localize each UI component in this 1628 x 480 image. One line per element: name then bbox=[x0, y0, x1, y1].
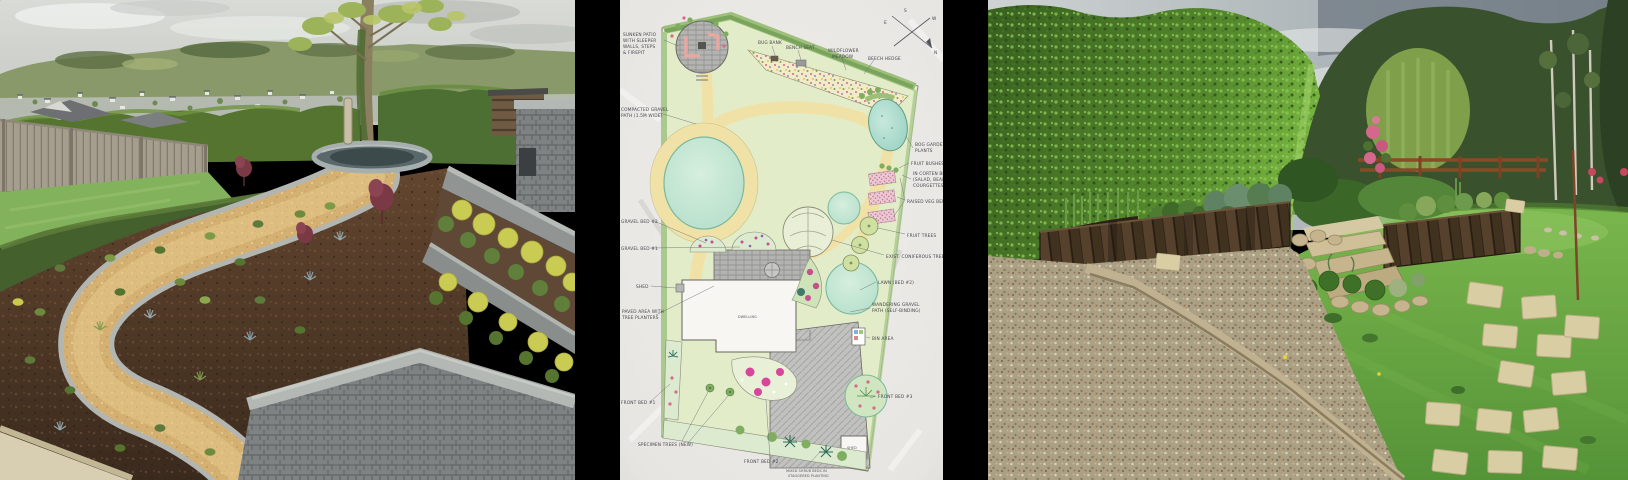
label-side-lawn: LAWN (BED #2) bbox=[878, 280, 914, 286]
label-fruit-bushes: FRUIT BUSHES bbox=[911, 161, 943, 167]
compass-n: N bbox=[934, 50, 937, 56]
label-bench-seat: BENCH SEAT bbox=[786, 45, 815, 51]
dwelling-label: DWELLING bbox=[738, 315, 757, 319]
label-bug-bank: BUG BANK bbox=[758, 40, 782, 46]
raised-veg-garden-scene bbox=[988, 0, 1628, 480]
herb-shrub bbox=[1411, 273, 1425, 287]
label-note: MIXED SHRUB BEDS IN bbox=[786, 469, 827, 473]
label-fruit-trees: FRUIT TREES bbox=[907, 233, 936, 239]
compass-s: S bbox=[904, 8, 907, 14]
willow-tree bbox=[1366, 48, 1470, 172]
svg-text:TREE PLANTERS: TREE PLANTERS bbox=[621, 315, 659, 321]
svg-text:COURGETTES): COURGETTES) bbox=[913, 183, 943, 189]
label-wildflower: WILDFLOWER bbox=[828, 48, 859, 54]
svg-text:& FIREPIT: & FIREPIT bbox=[623, 50, 645, 56]
terraced-garden-scene bbox=[0, 0, 575, 480]
label-front-bed-1: FRONT BED #1 bbox=[621, 400, 656, 406]
label-bin-area: BIN AREA bbox=[872, 336, 894, 342]
compass-w: W bbox=[932, 16, 937, 22]
stone-sculpture bbox=[344, 98, 352, 144]
garden-design-plan[interactable]: DWELLING SHED S N E W SUNKEN bbox=[620, 0, 943, 480]
svg-text:WITH SLEEPER: WITH SLEEPER bbox=[623, 38, 656, 44]
label-gravel-bed-1: GRAVEL BED #1 bbox=[621, 246, 658, 252]
label-gravel-bed-2: GRAVEL BED #2 bbox=[621, 219, 658, 225]
label-new-trees: SPECIMEN TREES (NEW) bbox=[638, 442, 693, 448]
label-shed-left: SHED bbox=[636, 284, 649, 290]
label-bog-garden: BOG GARDEN bbox=[915, 142, 943, 148]
svg-text:WALLS, STEPS: WALLS, STEPS bbox=[623, 44, 656, 50]
label-conifer: EXIST. CONIFEROUS TREE bbox=[886, 254, 943, 260]
label-front-bed-2: FRONT BED #2 bbox=[744, 459, 779, 465]
svg-text:(SALAD, BEANS &: (SALAD, BEANS & bbox=[913, 177, 943, 183]
label-sunken-patio: SUNKEN PATIO bbox=[623, 32, 657, 38]
label-beech-hedge: BEECH HEDGE bbox=[868, 56, 901, 62]
garden-plan-drawing: DWELLING SHED S N E W SUNKEN bbox=[620, 0, 943, 480]
photo-terraced-garden[interactable] bbox=[0, 0, 575, 480]
photo-raised-veg-garden[interactable] bbox=[988, 0, 1628, 480]
label-corten: IN CORTEN BEDS bbox=[913, 171, 943, 177]
santolina-shrub bbox=[1389, 279, 1407, 297]
svg-text:PATH (1.5M WIDE): PATH (1.5M WIDE) bbox=[621, 113, 663, 119]
label-raised-veg: RAISED VEG BEDS bbox=[907, 199, 943, 205]
svg-text:PLANTS: PLANTS bbox=[915, 148, 933, 154]
label-paved-area: PAVED AREA WITH bbox=[622, 309, 664, 315]
svg-text:STAGGERED PLANTING: STAGGERED PLANTING bbox=[788, 474, 829, 478]
svg-text:MEADOW: MEADOW bbox=[832, 54, 854, 60]
garden-bin bbox=[519, 148, 536, 176]
firepit-symbol bbox=[698, 42, 706, 49]
svg-text:PATH (SELF-BINDING): PATH (SELF-BINDING) bbox=[872, 308, 921, 314]
label-wandering-path: WANDERING GRAVEL bbox=[872, 302, 920, 308]
label-gravel-path: COMPACTED GRAVEL bbox=[621, 107, 669, 113]
bug-bank-symbol bbox=[771, 56, 778, 61]
shed-symbol-left bbox=[676, 284, 684, 292]
bin-area-symbol bbox=[852, 328, 865, 345]
garden-gallery-strip: DWELLING SHED S N E W SUNKEN bbox=[0, 0, 1628, 480]
bench-seat-symbol bbox=[796, 60, 806, 66]
compass-e: E bbox=[884, 20, 887, 26]
label-front-bed-3: FRONT BED #3 bbox=[878, 394, 913, 400]
